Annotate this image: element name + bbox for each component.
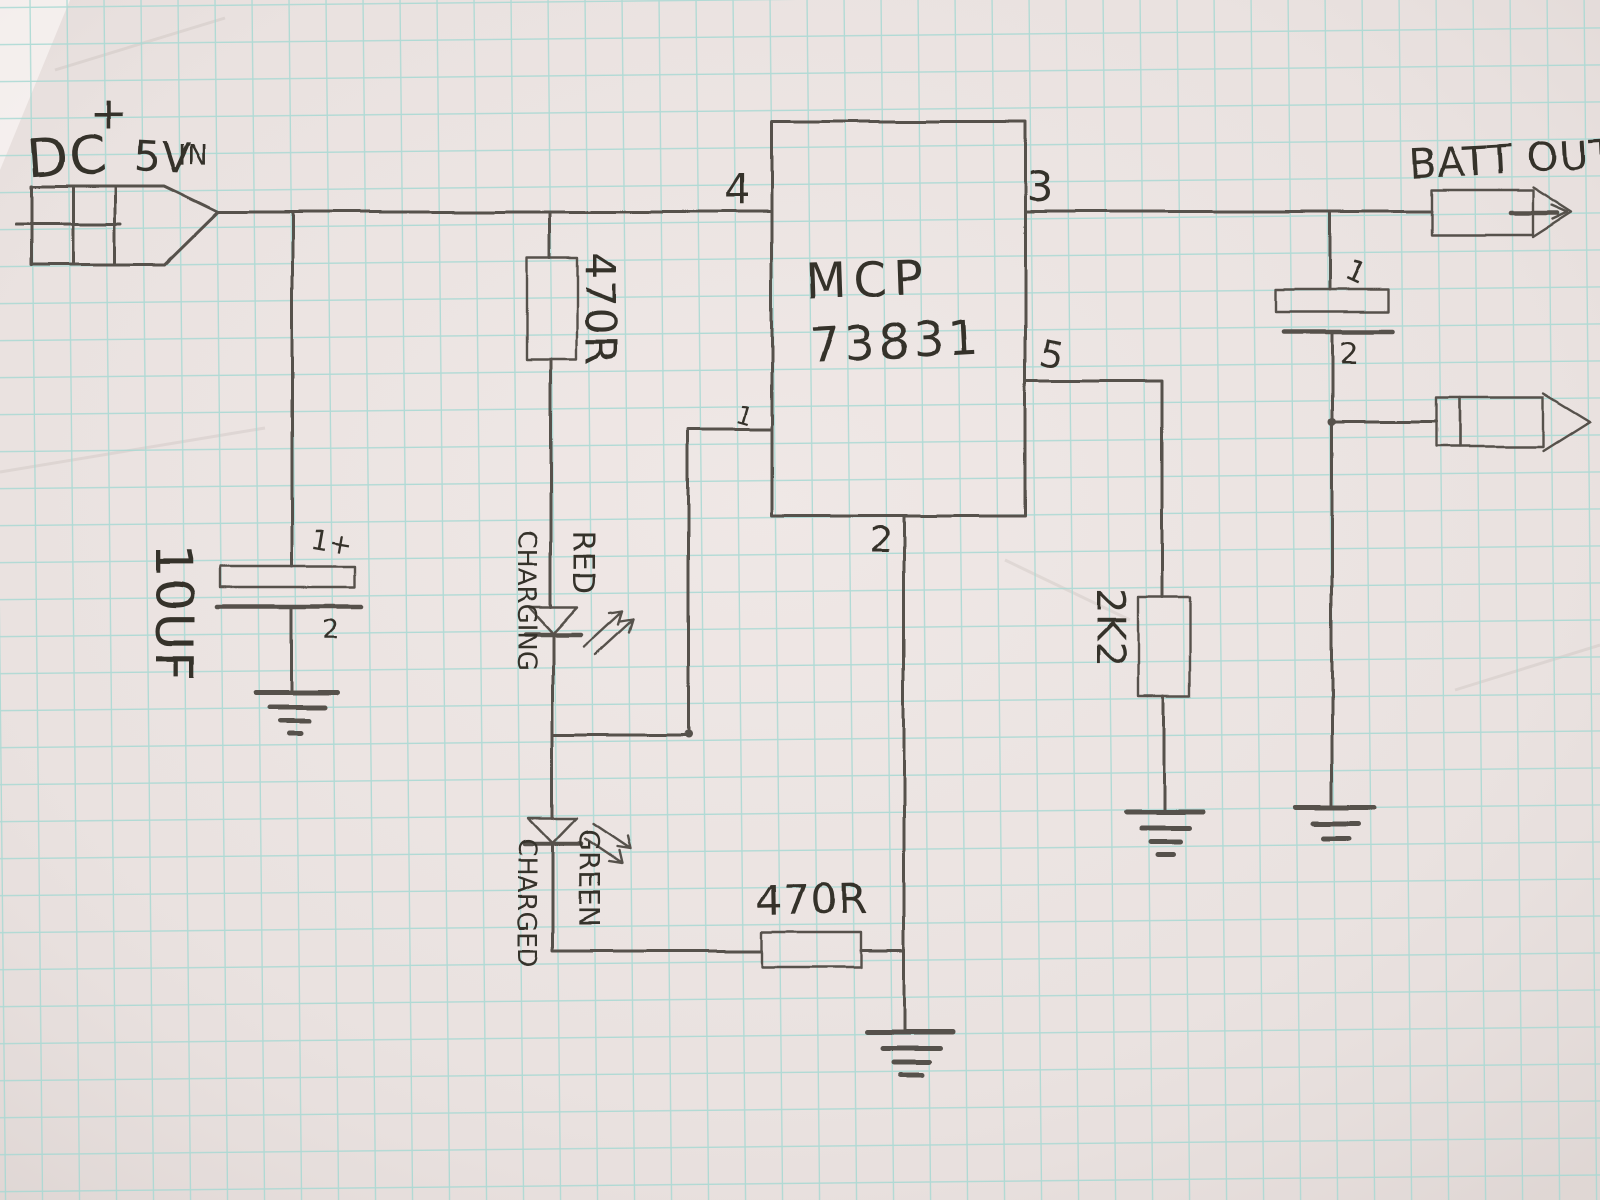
ic-name-line1: MCP bbox=[804, 250, 931, 310]
ic-pin4-label: 4 bbox=[724, 164, 751, 213]
schematic-canvas: DC + 5V IN BATT OUT MCP 73831 4 3 5 2 1 … bbox=[0, 0, 1600, 1200]
red-led-state-label: CHARGING bbox=[511, 531, 541, 672]
batt-out-label: BATT OUT bbox=[1408, 131, 1600, 188]
ic-pin3-label: 3 bbox=[1027, 162, 1054, 211]
junction-dot bbox=[1328, 418, 1336, 426]
green-series-resistor-label: 470R bbox=[755, 874, 869, 925]
junction-dot bbox=[684, 730, 692, 738]
dc-in-label: IN bbox=[178, 138, 209, 171]
ic-pin2-label: 2 bbox=[870, 520, 893, 561]
ic-name-line2: 73831 bbox=[808, 310, 983, 375]
input-cap-value-label: 10UF bbox=[143, 544, 203, 682]
green-led-state-label: CHARGED bbox=[511, 838, 541, 968]
output-cap-negative-pin-label: 2 bbox=[1339, 337, 1358, 372]
dc-plus-label: + bbox=[90, 88, 128, 139]
input-cap-negative-pin-label: 2 bbox=[322, 614, 339, 645]
red-series-resistor-label: 470R bbox=[576, 252, 625, 365]
green-led-color-label: GREEN bbox=[573, 829, 606, 926]
grid-paper bbox=[0, 0, 1600, 1200]
input-cap-positive-pin-label: 1+ bbox=[308, 523, 354, 563]
prog-resistor-label: 2K2 bbox=[1087, 588, 1133, 668]
schematic-photo: DC + 5V IN BATT OUT MCP 73831 4 3 5 2 1 … bbox=[0, 0, 1600, 1200]
red-led-color-label: RED bbox=[565, 531, 600, 594]
